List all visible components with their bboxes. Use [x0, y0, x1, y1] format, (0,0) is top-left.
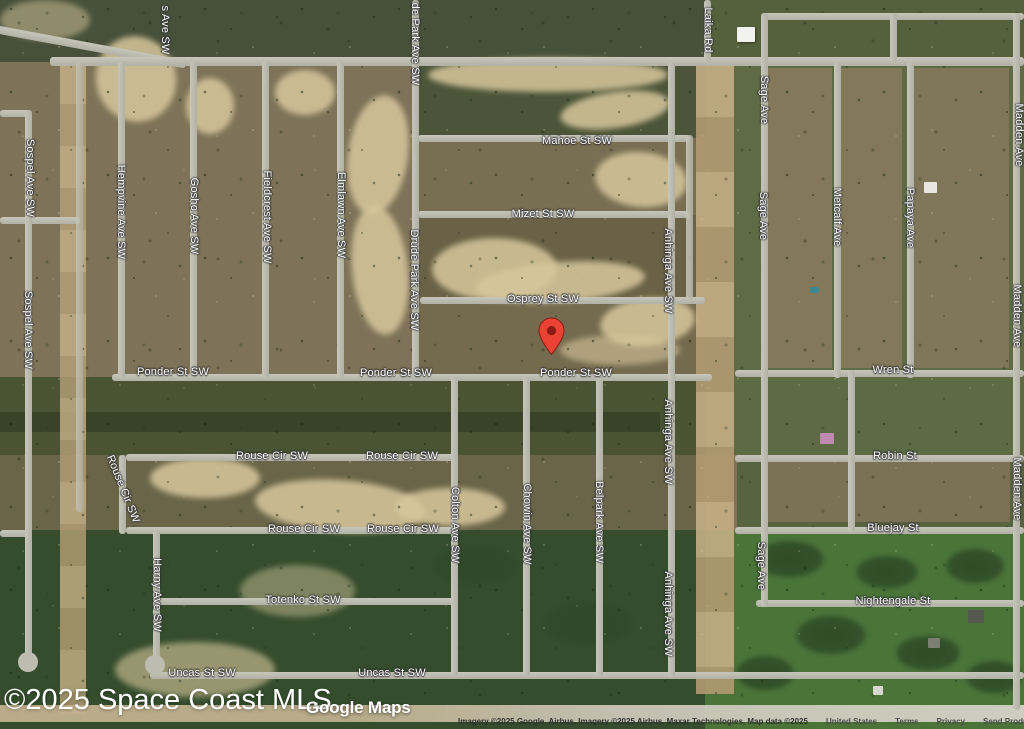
street-label: Sage Ave [758, 76, 770, 125]
street-label: Drude Park Ave SW [408, 229, 420, 330]
street-label: Chowin Ave SW [521, 483, 533, 564]
street-label: Belpark Ave SW [593, 481, 605, 563]
street-label: Osprey St SW [507, 293, 579, 305]
street-label: Rouse Cir SW [367, 523, 439, 535]
street-label: Ponder St SW [360, 367, 432, 379]
google-maps-logo[interactable]: Google Maps [306, 698, 411, 718]
street-label: Hempvine Ave SW [115, 165, 127, 260]
street-label: Bluejay St [867, 522, 919, 534]
street-label: Nightengale St [856, 595, 931, 607]
street-label: Sospel Ave SW [24, 139, 36, 217]
street-label: Totenko St SW [265, 594, 340, 606]
street-label: Ponder St SW [540, 367, 612, 379]
street-label: Sospel Ave SW [22, 291, 34, 369]
street-labels-layer: s Ave SWde Park Ave SWLaika RdSage AveMa… [0, 0, 1024, 729]
street-label: de Park Ave SW [409, 3, 421, 86]
pin-icon [538, 317, 565, 356]
street-label: Rouse Cir SW [236, 450, 308, 462]
attribution-link[interactable]: Terms [895, 717, 918, 726]
street-label: Madden Ave [1011, 285, 1023, 348]
street-label: Papaya Ave [904, 188, 916, 249]
imagery-credit: Imagery ©2025 Google, Airbus, Imagery ©2… [458, 717, 808, 726]
street-label: Fieldcrest Ave SW [261, 170, 273, 263]
street-label: Rouse Cir SW [366, 450, 438, 462]
street-label: Ponder St SW [137, 366, 209, 378]
street-label: Mahoe St SW [542, 135, 612, 147]
street-label: Madden Ave [1011, 458, 1023, 521]
street-label: Colton Ave SW [449, 487, 461, 563]
street-label: Laika Rd [702, 7, 714, 52]
street-label: Uncas St SW [358, 667, 426, 679]
street-label: Wren St [873, 364, 914, 376]
street-label: Metcalf Ave [831, 188, 843, 247]
street-label: Uncas St SW [168, 667, 236, 679]
street-label: Sage Ave [755, 542, 767, 591]
street-label: Sage Ave [757, 192, 769, 241]
street-label: Anhinga Ave SW [662, 228, 674, 313]
street-label: Mizet St SW [512, 208, 575, 220]
attribution-link[interactable]: Privacy [937, 717, 965, 726]
attribution-link[interactable]: Send Product Feedback [983, 717, 1024, 726]
street-label: Robin St [873, 450, 917, 462]
attribution-bar: Imagery ©2025 Google, Airbus, Imagery ©2… [458, 717, 1024, 726]
street-label: Anhinga Ave SW [662, 571, 674, 656]
street-label: Elmlawn Ave SW [335, 172, 347, 258]
street-label: Madden Ave [1013, 104, 1024, 167]
street-label: Anhinga Ave SW [662, 399, 674, 484]
street-label: s Ave SW [159, 5, 171, 54]
satellite-map[interactable]: s Ave SWde Park Ave SWLaika RdSage AveMa… [0, 0, 1024, 729]
street-label: Harny Ave SW [151, 558, 163, 632]
street-label: Rouse Cir SW [104, 453, 142, 524]
street-label: Rouse Cir SW [268, 523, 340, 535]
street-label: Gosho Ave SW [188, 178, 200, 255]
region-label: United States [826, 717, 877, 726]
